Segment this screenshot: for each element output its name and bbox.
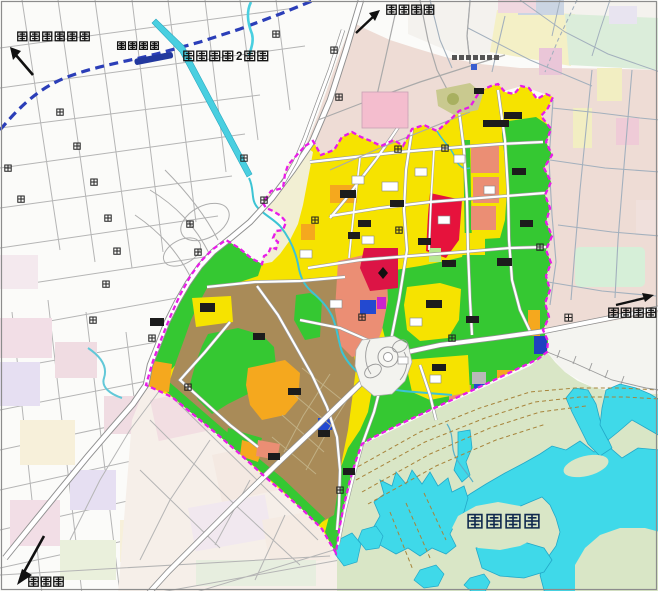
svg-text:2: 2 [236,51,242,63]
